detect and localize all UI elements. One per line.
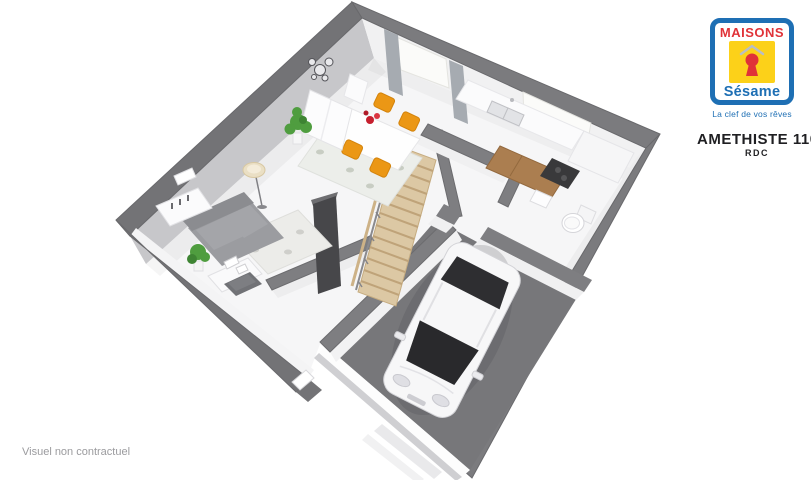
floorplan-visual: MAISONS Sésame La clef de vos rêves AMET…: [0, 0, 811, 480]
toilet-seat: [565, 217, 580, 229]
brand-logo: MAISONS Sésame La clef de vos rêves: [700, 18, 804, 119]
logo-sesame-text: Sésame: [716, 84, 788, 100]
disclaimer-text: Visuel non contractuel: [22, 446, 130, 458]
keyhole-icon: [729, 41, 775, 83]
floor-label: RDC: [697, 148, 811, 158]
logo-tagline: La clef de vos rêves: [700, 109, 804, 119]
keyhole-stem: [746, 64, 758, 76]
floorplan-3d-render: [0, 0, 811, 480]
cooktop-burner-1: [555, 167, 561, 173]
faucet: [510, 98, 514, 102]
cooktop-burner-2: [561, 175, 567, 181]
logo-box: MAISONS Sésame: [710, 18, 794, 105]
plan-title: AMETHISTE 110GI: [697, 131, 811, 148]
roof-icon: [741, 46, 763, 54]
logo-maisons-text: MAISONS: [716, 25, 788, 40]
logo-yellow-square: [729, 41, 775, 83]
